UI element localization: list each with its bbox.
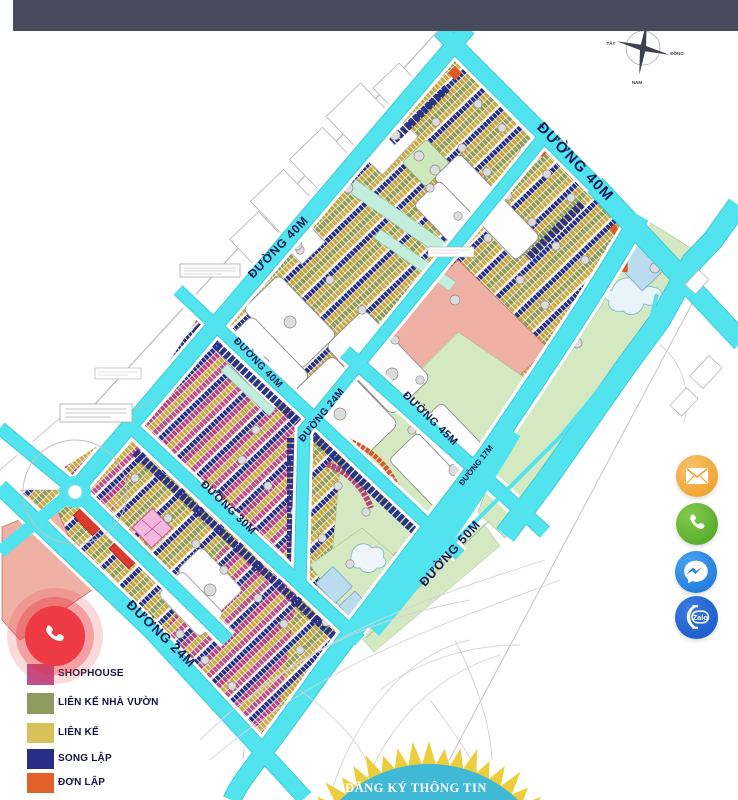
svg-text:Zalo: Zalo xyxy=(693,613,709,622)
svg-text:TÂY: TÂY xyxy=(607,40,616,46)
svg-text:ĐĂNG KÝ THÔNG TIN: ĐĂNG KÝ THÔNG TIN xyxy=(345,781,487,795)
svg-text:NAM: NAM xyxy=(632,80,642,85)
svg-text:ĐÔNG: ĐÔNG xyxy=(670,49,684,56)
